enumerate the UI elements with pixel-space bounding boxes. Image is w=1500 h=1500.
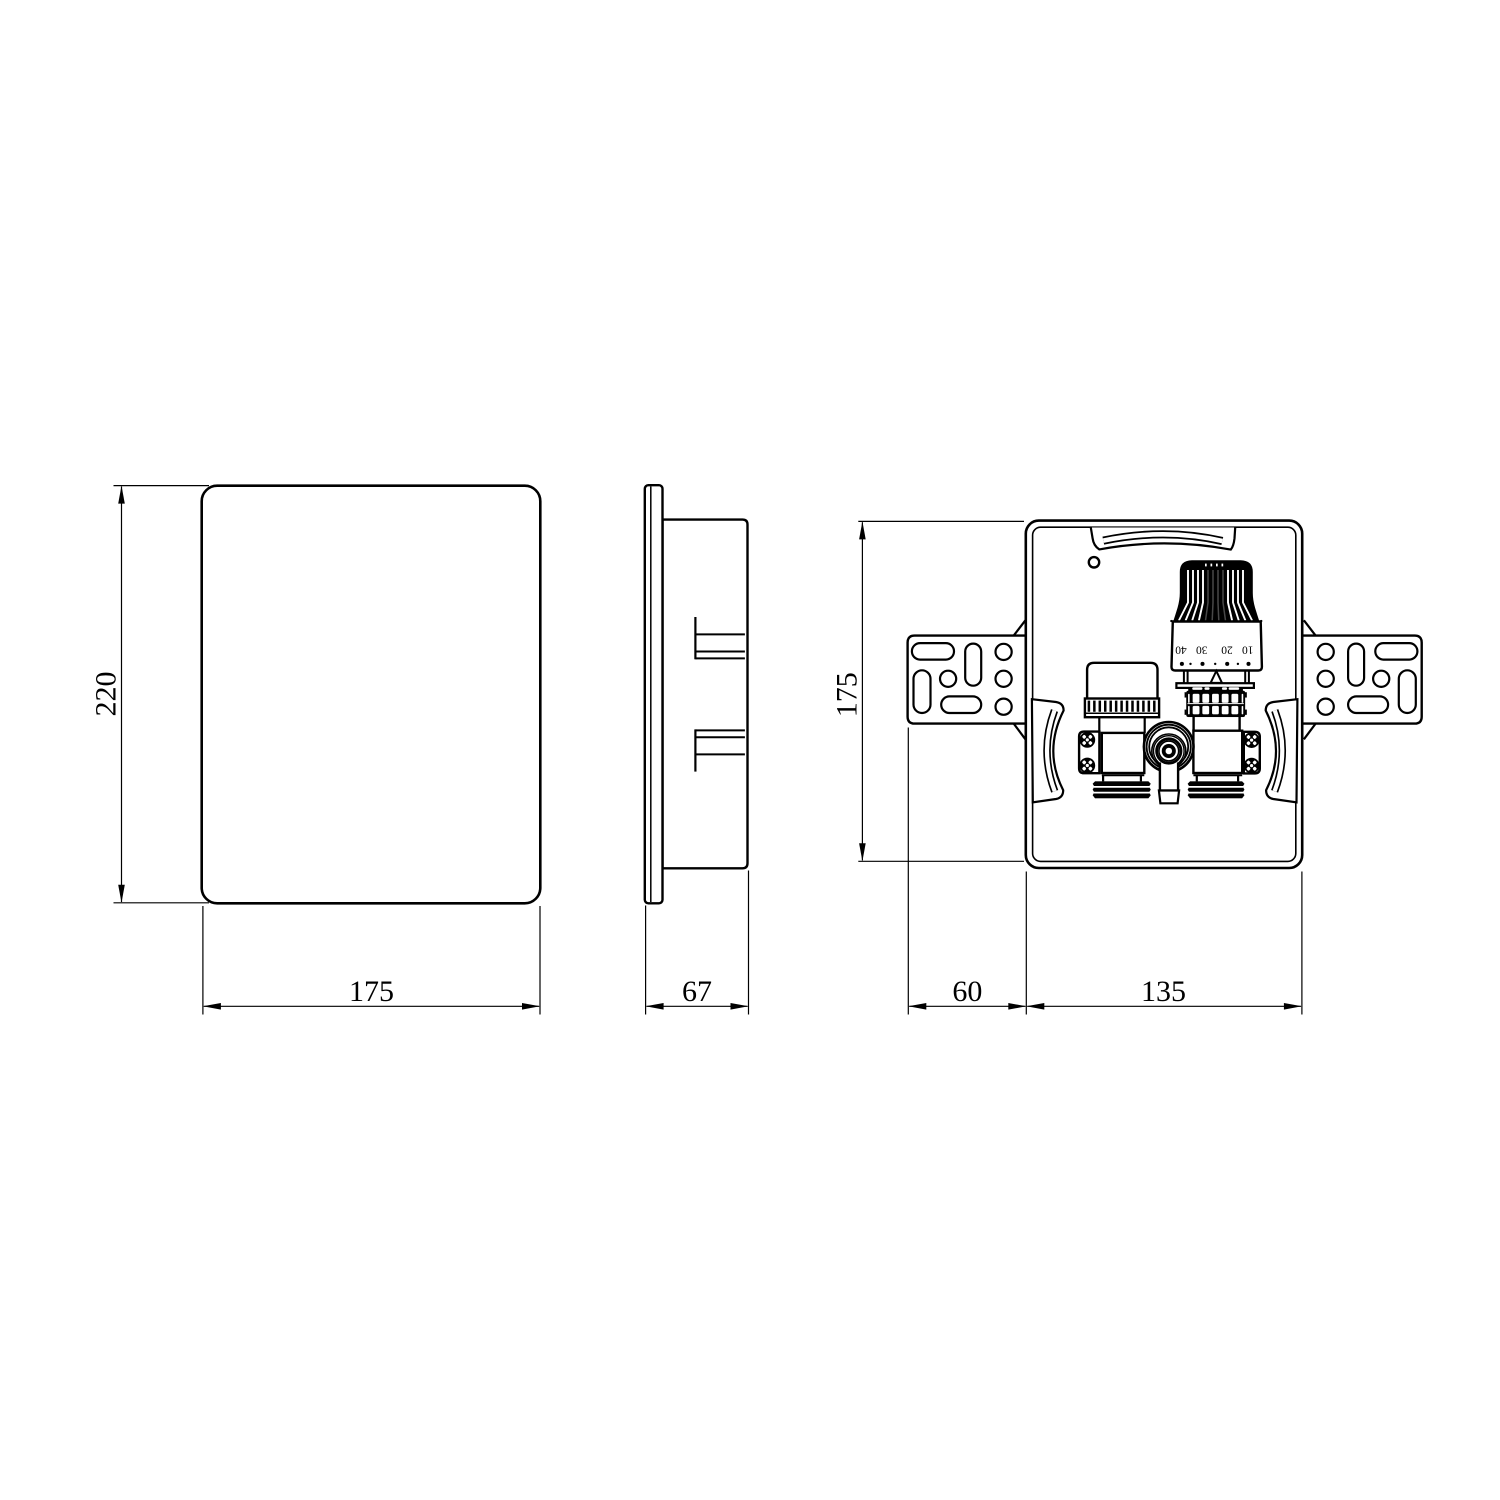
- svg-text:60: 60: [952, 975, 982, 1008]
- svg-text:220: 220: [89, 672, 122, 717]
- svg-text:175: 175: [349, 975, 394, 1008]
- svg-text:30: 30: [1196, 644, 1208, 656]
- svg-text:40: 40: [1175, 644, 1187, 656]
- svg-text:135: 135: [1141, 975, 1186, 1008]
- svg-text:10: 10: [1242, 644, 1254, 656]
- svg-text:175: 175: [830, 672, 863, 717]
- svg-text:67: 67: [682, 975, 712, 1008]
- svg-text:20: 20: [1221, 644, 1233, 656]
